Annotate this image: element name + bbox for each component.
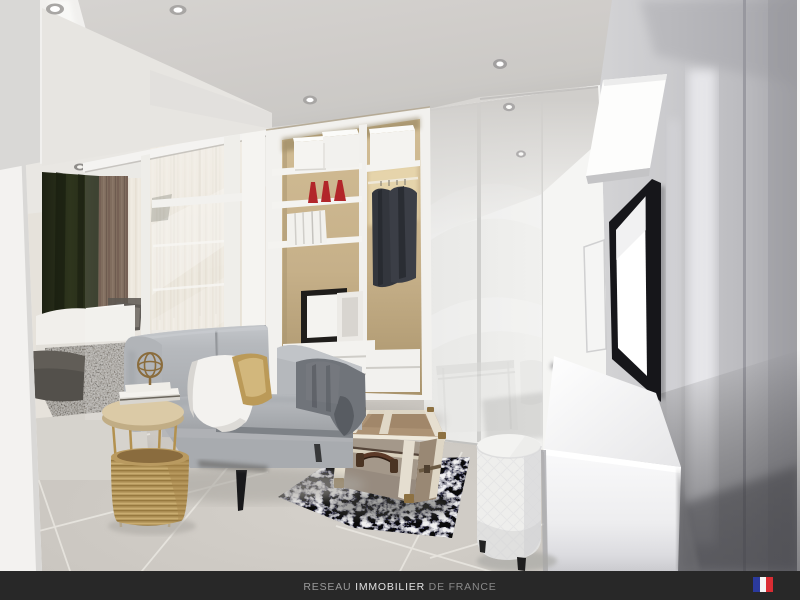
svg-text:RESEAU IMMOBILIER DE FRANCE: RESEAU IMMOBILIER DE FRANCE — [303, 581, 496, 593]
